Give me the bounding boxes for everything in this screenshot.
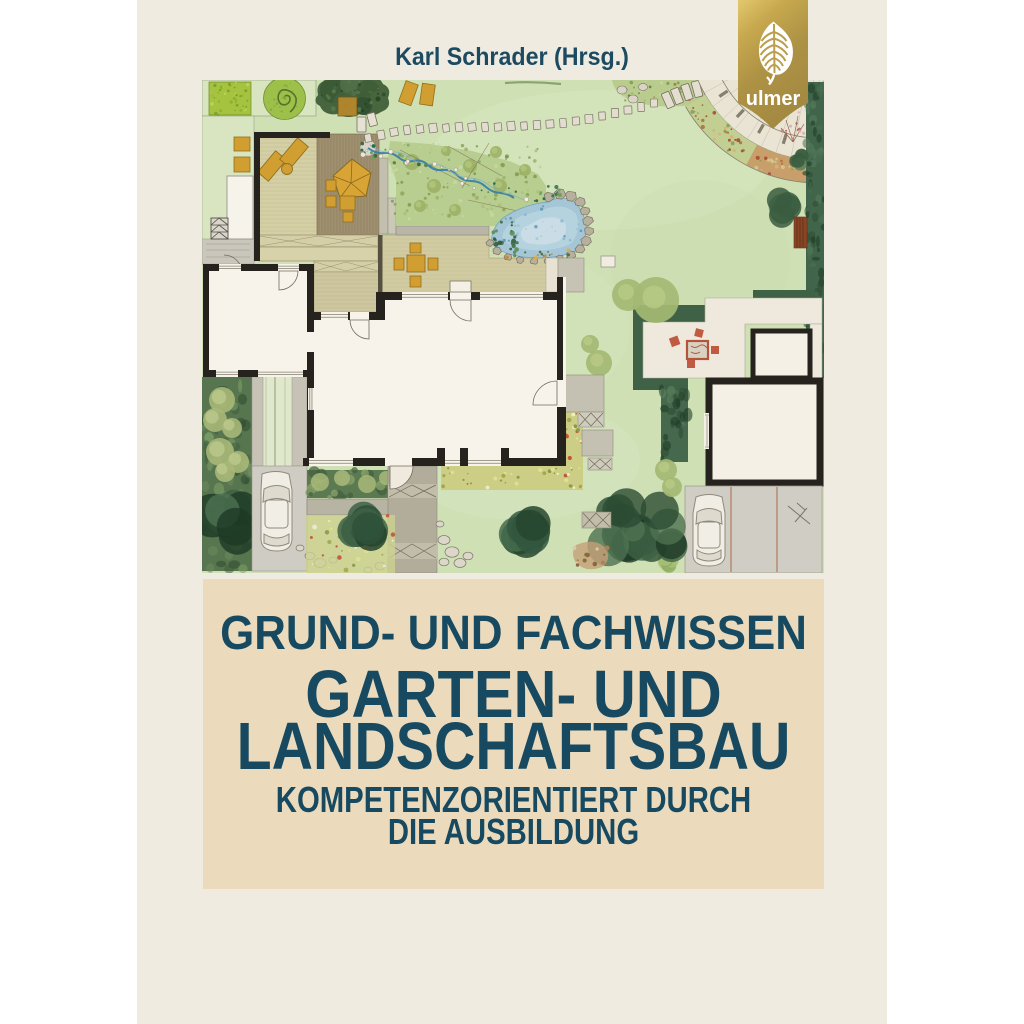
svg-text:ulmer: ulmer [746, 88, 801, 110]
